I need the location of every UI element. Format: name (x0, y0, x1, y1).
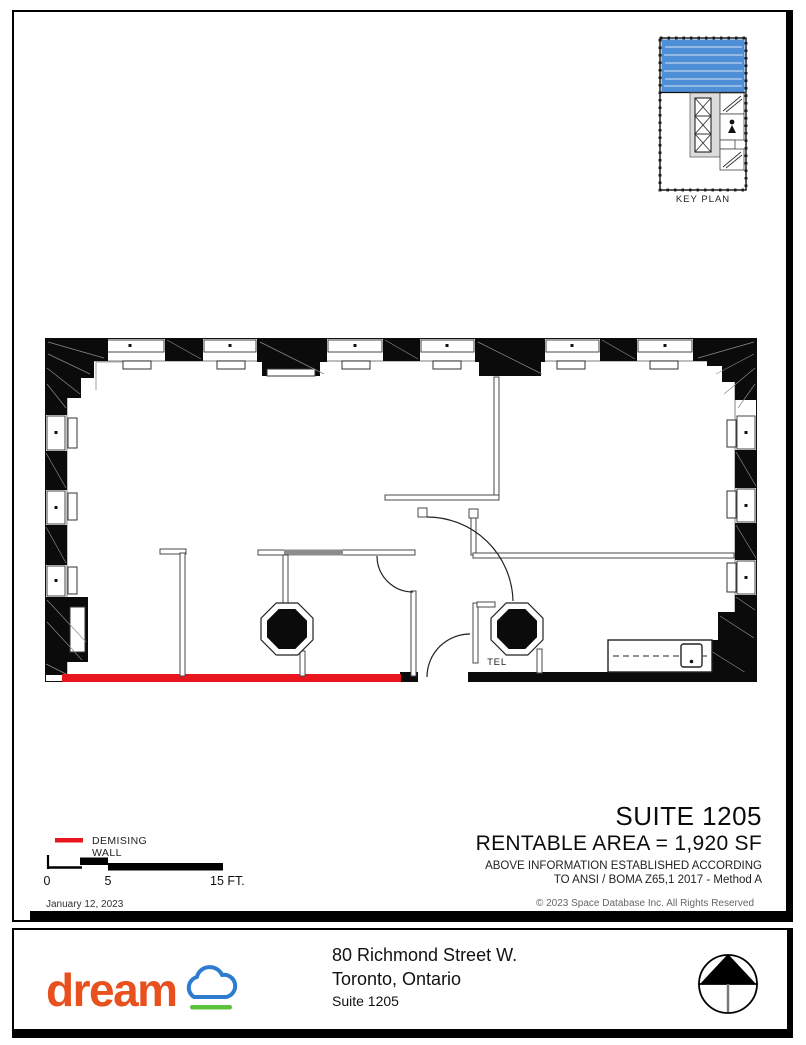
exterior-walls (45, 338, 757, 683)
corner-column (45, 597, 88, 675)
address-street: 80 Richmond Street W. (332, 944, 517, 968)
scale-tick-5: 5 (105, 874, 112, 888)
key-plan-building (660, 38, 746, 190)
address-block: 80 Richmond Street W. Toronto, Ontario S… (332, 944, 517, 1010)
cloud-icon (189, 967, 235, 997)
address-city: Toronto, Ontario (332, 968, 517, 992)
tel-room-label: TEL (487, 657, 507, 668)
copyright-notice: © 2023 Space Database Inc. All Rights Re… (536, 898, 754, 909)
demising-wall-line (62, 674, 401, 682)
address-suite: Suite 1205 (332, 992, 517, 1010)
scale-tick-0: 0 (44, 874, 51, 888)
interior-partitions (160, 377, 734, 676)
column-octagon-west (261, 603, 313, 655)
kitchenette-counter (608, 640, 712, 672)
demising-wall-swatch (55, 836, 85, 846)
door-swings (377, 517, 513, 677)
scale-tick-15: 15 FT. (210, 874, 245, 888)
stairs-bottom (720, 149, 744, 170)
suite-title: SUITE 1205 (476, 802, 762, 831)
footer-title-block: dream 80 Richmond Street W. Toronto, Ont… (12, 928, 793, 1038)
washroom (720, 114, 744, 140)
wall-thick-segment (284, 550, 343, 556)
key-plan-label: KEY PLAN (676, 194, 730, 205)
washroom-person-icon (730, 120, 735, 125)
scale-bar: 0 5 15 FT. (42, 848, 257, 890)
boma-note-line2: TO ANSI / BOMA Z65,1 2017 - Method A (476, 873, 762, 887)
key-plan: KEY PLAN (650, 32, 762, 210)
service-room (720, 140, 735, 149)
rentable-area: RENTABLE AREA = 1,920 SF (476, 831, 762, 856)
north-arrow-icon (691, 946, 765, 1020)
title-bar-divider (30, 911, 787, 920)
column-octagon-east (491, 603, 543, 655)
sink (681, 644, 702, 667)
elevator-shaft (695, 98, 711, 152)
boma-note-line1: ABOVE INFORMATION ESTABLISHED ACCORDING (476, 859, 762, 873)
logo-underline (190, 1005, 232, 1010)
dream-logo-text: dream (46, 964, 177, 1016)
floor-plan: TEL (40, 330, 760, 688)
issue-date: January 12, 2023 (46, 899, 123, 910)
dream-logo: dream (44, 948, 254, 1020)
plan-sheet: KEY PLAN (0, 0, 806, 1045)
stairs-top (720, 93, 744, 114)
title-block: SUITE 1205 RENTABLE AREA = 1,920 SF ABOV… (476, 802, 762, 887)
